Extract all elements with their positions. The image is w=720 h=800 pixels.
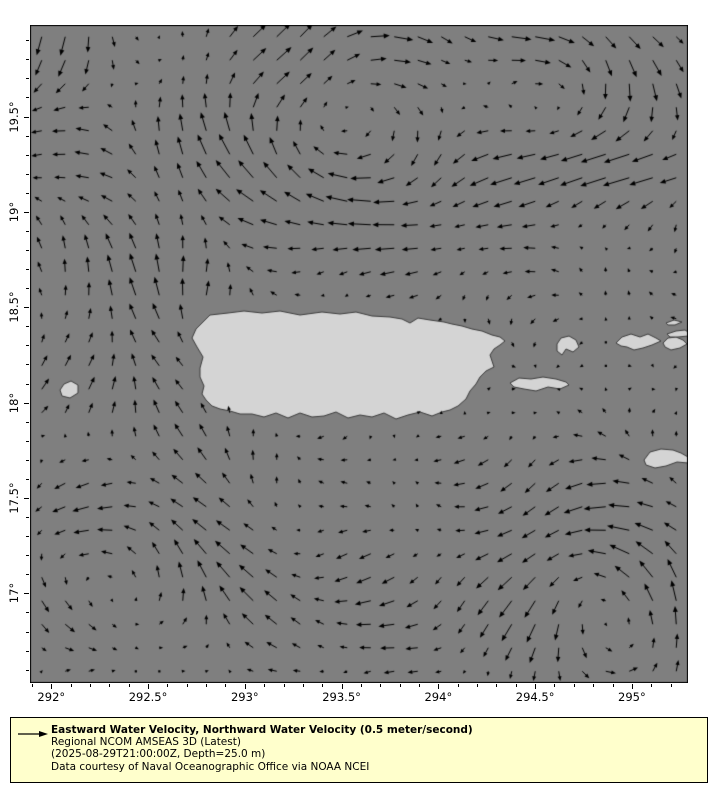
x-minor-tick	[496, 684, 497, 687]
x-major-tick	[51, 684, 52, 689]
x-minor-tick	[671, 684, 672, 687]
x-minor-tick	[458, 684, 459, 687]
y-minor-tick	[26, 364, 29, 365]
y-tick-label: 17.5°	[7, 482, 21, 513]
y-minor-tick	[26, 174, 29, 175]
x-tick-label: 294°	[424, 690, 452, 704]
legend-box: Eastward Water Velocity, Northward Water…	[10, 717, 708, 783]
legend-time-depth-line: (2025-08-29T21:00:00Z, Depth=25.0 m)	[51, 748, 473, 760]
x-minor-tick	[90, 684, 91, 687]
x-major-tick	[535, 684, 536, 689]
x-minor-tick	[380, 684, 381, 687]
y-minor-tick	[26, 555, 29, 556]
y-minor-tick	[26, 517, 29, 518]
legend-title: Eastward Water Velocity, Northward Water…	[51, 724, 473, 736]
reference-velocity-arrow-icon	[17, 729, 49, 739]
y-minor-tick	[26, 250, 29, 251]
y-minor-tick	[26, 422, 29, 423]
y-minor-tick	[26, 136, 29, 137]
x-minor-tick	[322, 684, 323, 687]
y-major-tick	[24, 593, 29, 594]
x-minor-tick	[361, 684, 362, 687]
y-minor-tick	[26, 441, 29, 442]
x-minor-tick	[400, 684, 401, 687]
x-minor-tick	[71, 684, 72, 687]
x-tick-label: 295°	[618, 690, 646, 704]
x-major-tick	[148, 684, 149, 689]
y-minor-tick	[26, 479, 29, 480]
y-minor-tick	[26, 78, 29, 79]
x-major-tick	[245, 684, 246, 689]
y-major-tick	[24, 307, 29, 308]
x-tick-label: 293.5°	[322, 690, 361, 704]
y-minor-tick	[26, 460, 29, 461]
x-minor-tick	[32, 684, 33, 687]
y-minor-tick	[26, 612, 29, 613]
x-minor-tick	[613, 684, 614, 687]
y-tick-label: 17°	[7, 583, 21, 603]
x-tick-label: 293°	[231, 690, 259, 704]
y-minor-tick	[26, 97, 29, 98]
y-minor-tick	[26, 269, 29, 270]
x-minor-tick	[574, 684, 575, 687]
legend-credit-line: Data courtesy of Naval Oceanographic Off…	[51, 761, 473, 773]
y-major-tick	[24, 403, 29, 404]
y-major-tick	[24, 117, 29, 118]
x-minor-tick	[264, 684, 265, 687]
y-major-tick	[24, 498, 29, 499]
x-tick-label: 292°	[37, 690, 65, 704]
y-minor-tick	[26, 574, 29, 575]
x-minor-tick	[593, 684, 594, 687]
x-minor-tick	[419, 684, 420, 687]
y-minor-tick	[26, 536, 29, 537]
x-minor-tick	[651, 684, 652, 687]
y-minor-tick	[26, 231, 29, 232]
legend-model-line: Regional NCOM AMSEAS 3D (Latest)	[51, 736, 473, 748]
x-major-tick	[438, 684, 439, 689]
x-major-tick	[632, 684, 633, 689]
y-minor-tick	[26, 345, 29, 346]
legend-text: Eastward Water Velocity, Northward Water…	[51, 724, 473, 773]
y-tick-label: 18.5°	[7, 292, 21, 323]
y-tick-label: 18°	[7, 392, 21, 412]
axes-layer: 292°292.5°293°293.5°294°294.5°295°17°17.…	[0, 0, 720, 720]
y-minor-tick	[26, 670, 29, 671]
x-minor-tick	[516, 684, 517, 687]
y-tick-label: 19.5°	[7, 101, 21, 132]
x-minor-tick	[167, 684, 168, 687]
figure: 292°292.5°293°293.5°294°294.5°295°17°17.…	[0, 0, 720, 800]
y-minor-tick	[26, 651, 29, 652]
y-minor-tick	[26, 59, 29, 60]
y-minor-tick	[26, 40, 29, 41]
y-major-tick	[24, 212, 29, 213]
y-minor-tick	[26, 326, 29, 327]
x-major-tick	[342, 684, 343, 689]
y-minor-tick	[26, 155, 29, 156]
x-minor-tick	[284, 684, 285, 687]
y-minor-tick	[26, 193, 29, 194]
x-tick-label: 292.5°	[129, 690, 168, 704]
x-minor-tick	[206, 684, 207, 687]
y-minor-tick	[26, 632, 29, 633]
x-minor-tick	[129, 684, 130, 687]
x-minor-tick	[477, 684, 478, 687]
x-minor-tick	[109, 684, 110, 687]
x-minor-tick	[554, 684, 555, 687]
x-tick-label: 294.5°	[516, 690, 555, 704]
x-minor-tick	[187, 684, 188, 687]
y-minor-tick	[26, 384, 29, 385]
x-minor-tick	[303, 684, 304, 687]
y-tick-label: 19°	[7, 202, 21, 222]
x-minor-tick	[225, 684, 226, 687]
y-minor-tick	[26, 288, 29, 289]
